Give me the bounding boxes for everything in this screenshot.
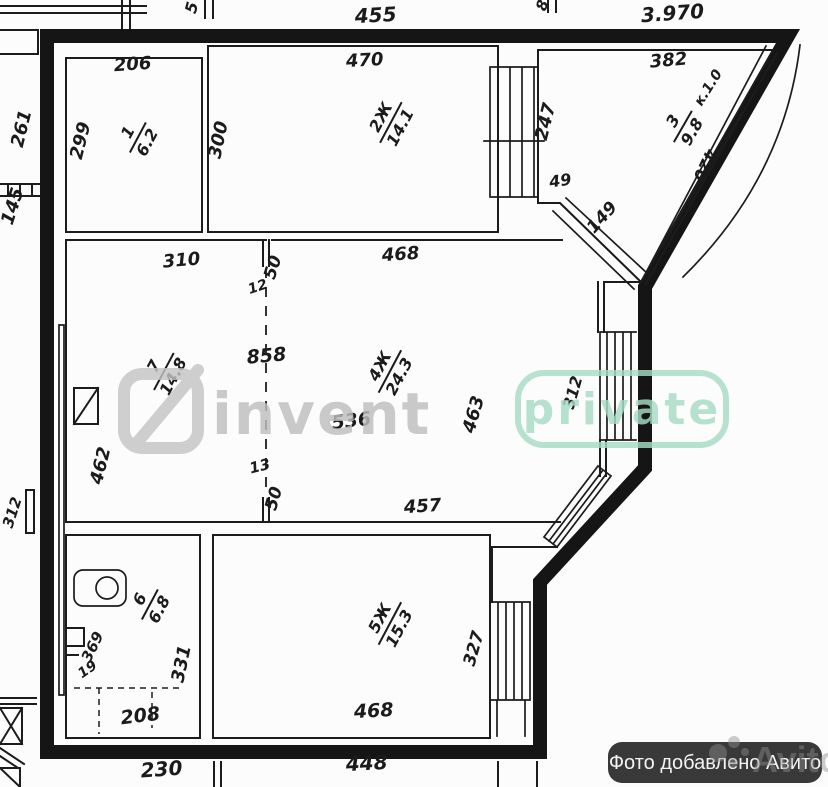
dim-468-top: 468 [380,243,420,267]
room3-number: 3 [662,111,684,130]
pipe-chase [59,325,64,695]
floorplan-photo: 455 3.970 5 8 261 145 312 230 448 206 29… [0,0,828,787]
avito-logo-dot [741,748,749,756]
floor-plan-svg: 455 3.970 5 8 261 145 312 230 448 206 29… [0,0,828,787]
dim-145: 145 [0,185,29,227]
dim-312-outside: 312 [0,495,26,530]
avito-logo-dot [709,744,727,762]
dim-369: 369 [78,629,108,665]
room3-label: 3 9.8 [656,100,710,152]
dim-858: 858 [246,343,287,368]
watermark-private-badge: private [518,373,726,445]
dim-455: 455 [353,2,397,28]
adjacent-left-walls [0,184,42,533]
watermark-private-text: private [523,384,722,435]
avito-logo-text: Avito [752,739,828,780]
avito-logo-dot [728,758,738,768]
adjacent-bottom-walls [0,698,537,787]
room6-label: 6 6.8 [123,580,175,629]
dim-448: 448 [344,750,388,776]
dim-19: 19 [75,657,100,681]
dim-50-bottom: 50 [261,484,287,512]
dim-299: 299 [66,120,95,162]
dim-208: 208 [119,703,161,730]
dim-206: 206 [113,53,152,77]
avito-logo-dot [728,736,740,748]
room2-outline [208,46,498,232]
dim-5-partial: 5 [181,0,202,15]
dim-247: 247 [531,100,561,142]
dim-13: 13 [247,455,272,478]
dim-463: 463 [458,394,489,437]
dim-327: 327 [460,629,489,669]
dim-230: 230 [140,756,183,783]
dim-382: 382 [649,48,688,72]
dim-49: 49 [547,170,573,192]
room5-label: 5Ж 15.3 [360,592,419,654]
window-327-hatch [490,602,530,736]
dim-470: 470 [344,49,384,72]
vent-shaft-symbol [74,388,98,424]
room1-label: 1 6.2 [111,113,163,162]
dim-3970: 3.970 [640,0,705,27]
watermark-brand-text: invent [212,380,431,448]
dim-261: 261 [7,108,36,150]
room3-outline [538,50,773,282]
dim-331: 331 [167,643,195,684]
room2-label: 2Ж 14.1 [362,92,420,152]
dim-420: 420 [689,145,721,184]
dim-310: 310 [162,248,201,272]
dim-8-partial: 8 [532,0,552,13]
room1-number: 1 [117,123,139,142]
bathtub-drain-icon [96,577,118,599]
dim-457: 457 [402,495,442,519]
dim-468-bottom: 468 [352,699,394,723]
room6-number: 6 [129,590,151,609]
dim-462: 462 [86,445,116,488]
room5-outline [213,535,490,738]
dim-k10: к.1.0 [691,67,726,109]
watermark: invent private [124,370,726,448]
